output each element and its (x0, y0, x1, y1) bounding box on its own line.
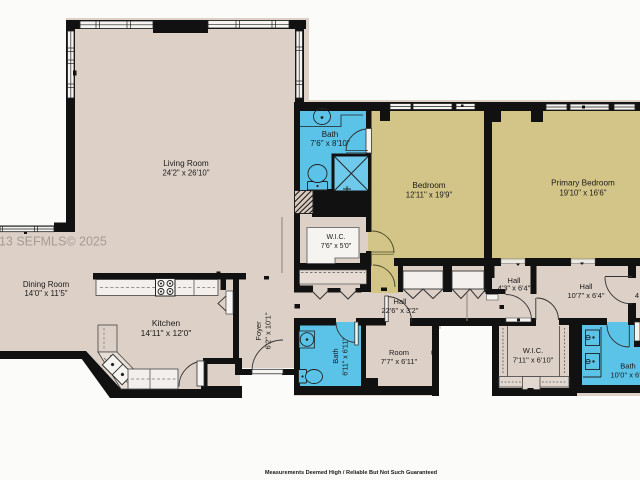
svg-text:10'0" x 6'8": 10'0" x 6'8" (611, 371, 640, 380)
svg-text:24'2" x 26'10": 24'2" x 26'10" (162, 169, 209, 178)
svg-text:W.I.C.: W.I.C. (523, 346, 543, 355)
svg-text:Dining Room: Dining Room (23, 280, 70, 289)
svg-text:4'3" x 6'4": 4'3" x 6'4" (498, 284, 531, 293)
svg-text:7'11" x 6'10": 7'11" x 6'10" (513, 356, 554, 365)
svg-text:Living Room: Living Room (163, 159, 209, 168)
svg-text:10'7" x 6'4": 10'7" x 6'4" (568, 291, 605, 300)
svg-text:19'10" x 16'6": 19'10" x 16'6" (559, 189, 606, 198)
svg-text:14'11" x 12'0": 14'11" x 12'0" (141, 328, 192, 338)
svg-text:6'2" x 10'1": 6'2" x 10'1" (264, 312, 273, 349)
svg-text:Kitchen: Kitchen (152, 318, 181, 328)
svg-text:W.I.C.: W.I.C. (326, 234, 345, 241)
svg-text:Hall: Hall (580, 282, 593, 291)
svg-text:Bath: Bath (620, 362, 635, 371)
svg-text:Foyer: Foyer (254, 321, 263, 341)
svg-text:7'6" x 5'0": 7'6" x 5'0" (321, 243, 352, 250)
svg-text:Bedroom: Bedroom (412, 181, 445, 190)
svg-text:7'7" x 6'11": 7'7" x 6'11" (381, 357, 418, 366)
svg-text:12'11" x 19'9": 12'11" x 19'9" (406, 191, 453, 200)
svg-text:713 SEFMLS© 2025: 713 SEFMLS© 2025 (0, 235, 107, 249)
svg-text:14'0" x 11'5": 14'0" x 11'5" (24, 289, 67, 298)
svg-text:4: 4 (635, 291, 639, 300)
svg-text:22'6" x 3'2": 22'6" x 3'2" (382, 306, 419, 315)
svg-text:Bath: Bath (322, 130, 338, 139)
svg-text:Hall: Hall (394, 297, 407, 306)
svg-text:Room: Room (389, 348, 409, 357)
svg-text:6'11" x 6'11": 6'11" x 6'11" (343, 338, 350, 376)
svg-text:Bath: Bath (331, 348, 340, 363)
svg-text:Primary Bedroom: Primary Bedroom (551, 179, 615, 188)
svg-text:7'6" x 8'10": 7'6" x 8'10" (310, 139, 350, 148)
svg-text:Measurements Deemed High / Rel: Measurements Deemed High / Reliable But … (265, 470, 438, 476)
